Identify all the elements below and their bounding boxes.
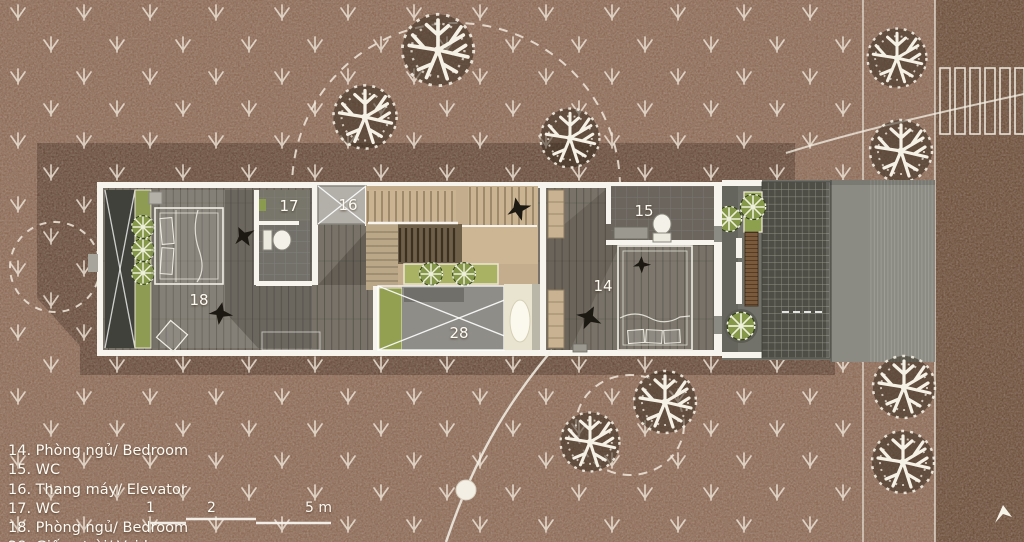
toilet-17 [263, 230, 291, 250]
room-label-18: 18 [189, 291, 208, 309]
edge-planter [132, 190, 155, 348]
scale-tick-1: 1 [146, 500, 155, 516]
scale-tick-2: 2 [207, 500, 216, 516]
legend-item: 15. WC [8, 461, 188, 480]
room-label-17: 17 [279, 197, 298, 215]
room-label-15: 15 [634, 202, 653, 220]
vanity-15 [614, 227, 648, 239]
legend-item: 18. Phòng ngủ/ Bedroom [8, 519, 188, 538]
legend-item: 28. Giếng trời/ Void [8, 538, 188, 542]
lightwell [504, 284, 540, 350]
room-label-28: 28 [449, 324, 468, 342]
bed-18 [155, 208, 223, 284]
balcony-void [105, 190, 135, 348]
stair-planter [404, 263, 498, 286]
toilet-15 [653, 214, 671, 242]
wc-15 [606, 186, 714, 245]
building [88, 182, 722, 356]
pergola-grid [762, 182, 830, 358]
east-wall [714, 182, 722, 356]
terrace [716, 180, 830, 360]
site-plan-canvas: 14. Phòng ngủ/ Bedroom 15. WC 16. Thang … [0, 0, 1024, 542]
legend: 14. Phòng ngủ/ Bedroom 15. WC 16. Thang … [8, 442, 188, 542]
legend-item: 16. Thang máy/ Elevator [8, 481, 188, 500]
room-label-14: 14 [593, 277, 612, 295]
legend-item: 17. WC [8, 500, 188, 519]
driveway [830, 180, 935, 362]
scale-tick-5m: 5 m [305, 500, 332, 516]
room-label-16: 16 [338, 196, 357, 214]
path-node-dot [456, 480, 476, 500]
legend-item: 14. Phòng ngủ/ Bedroom [8, 442, 188, 461]
bed-14 [618, 246, 692, 350]
